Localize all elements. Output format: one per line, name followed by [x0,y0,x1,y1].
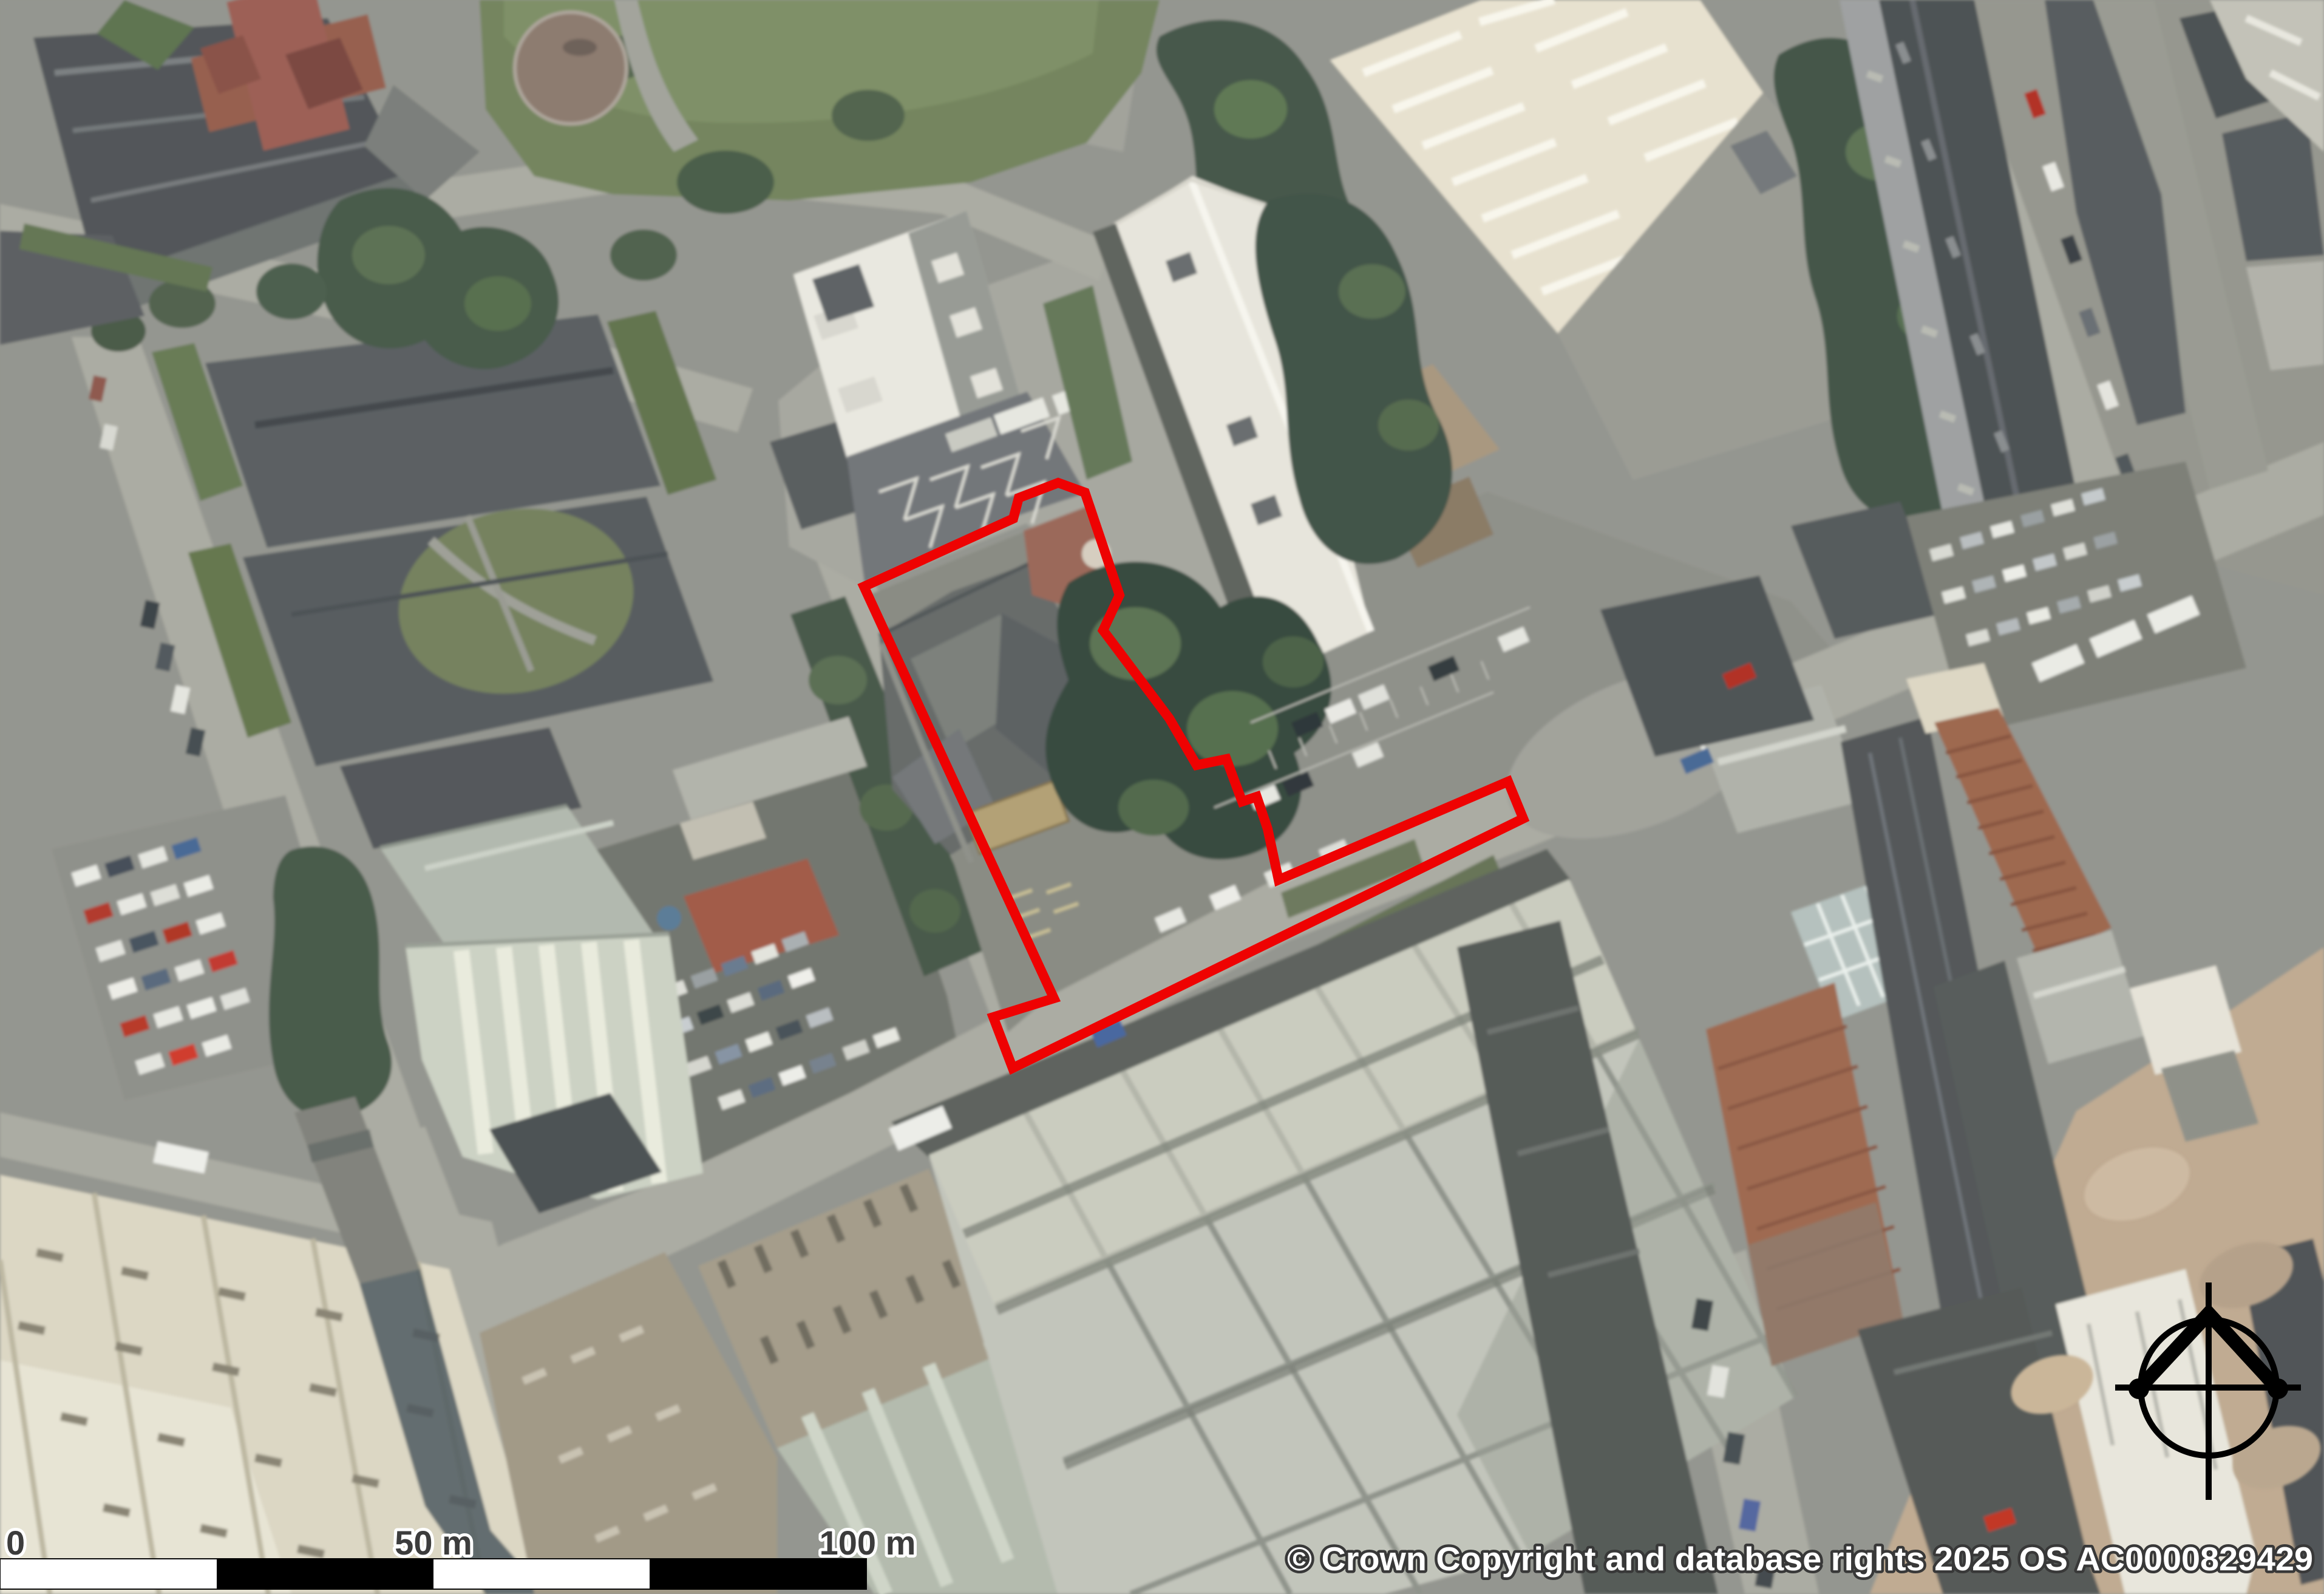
svg-text:0: 0 [6,1524,25,1562]
svg-text:100 m: 100 m [820,1524,916,1562]
svg-text:50 m: 50 m [395,1524,472,1562]
svg-text:© Crown Copyright and database: © Crown Copyright and database rights 20… [1287,1540,2313,1578]
